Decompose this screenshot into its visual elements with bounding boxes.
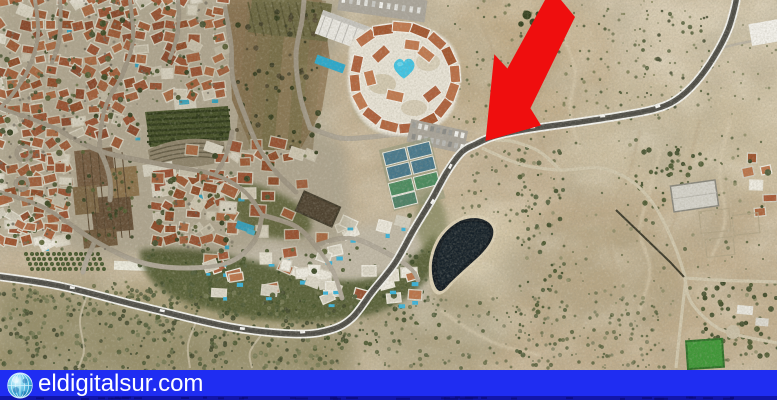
svg-text:eldigitalsur.com: eldigitalsur.com [38, 370, 203, 397]
